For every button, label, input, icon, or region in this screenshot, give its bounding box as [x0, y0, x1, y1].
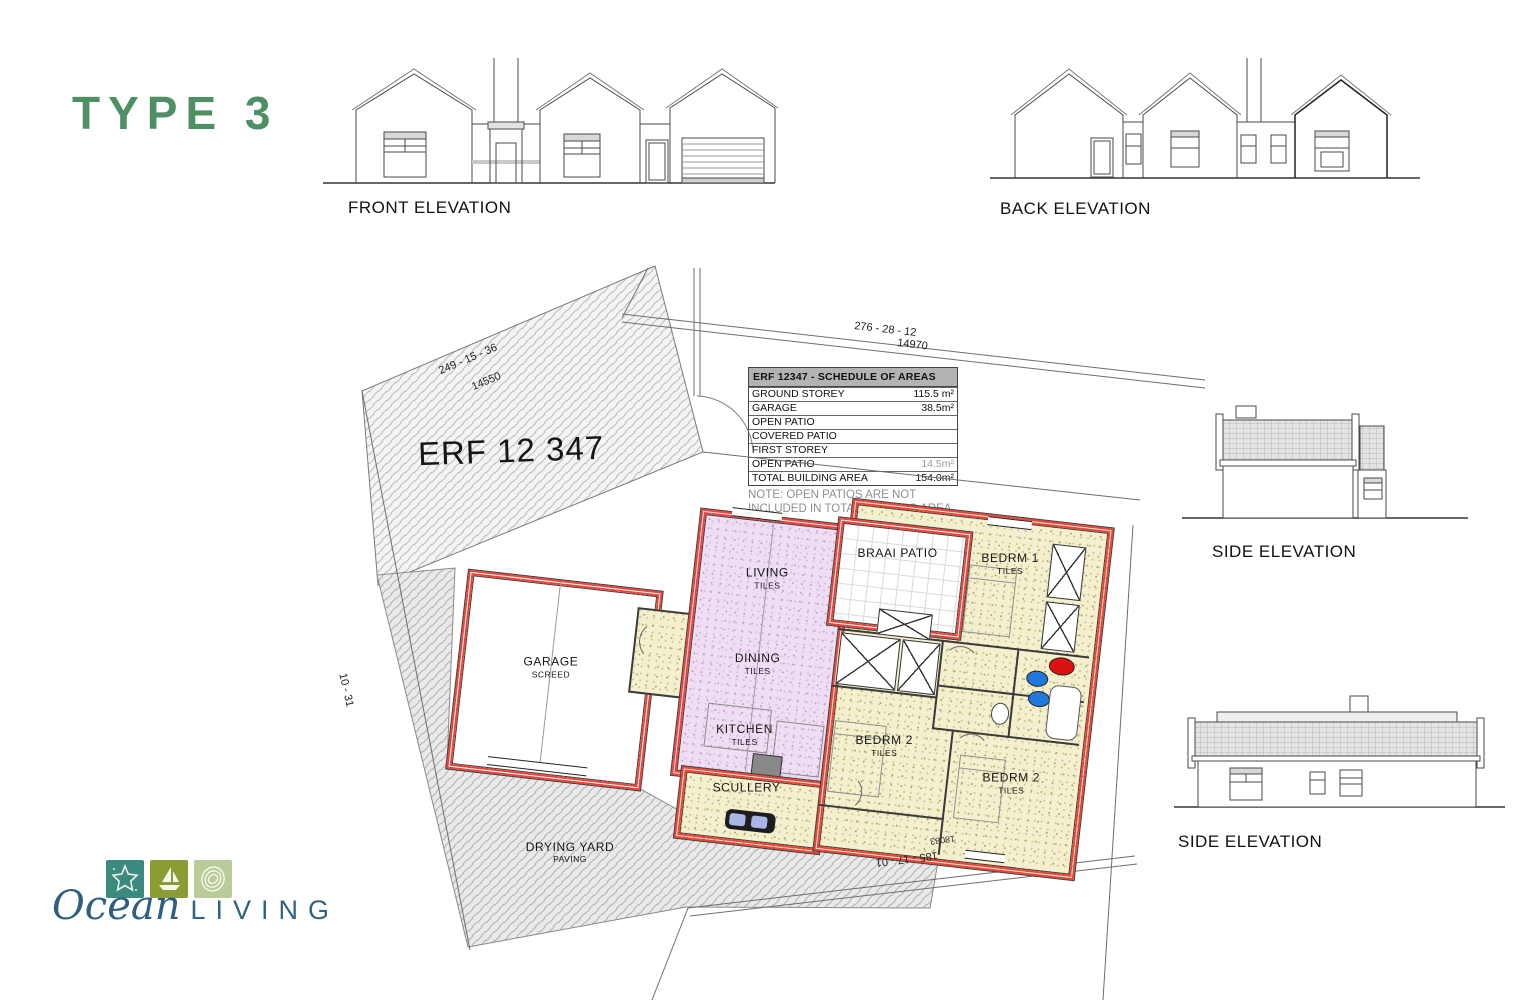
schedule-row: OPEN PATIO14.5m²	[749, 457, 957, 471]
back-elevation-label: BACK ELEVATION	[1000, 199, 1151, 219]
logo-caps-text: LIVING	[190, 897, 339, 924]
side-elevation-upper-drawing	[1180, 398, 1470, 538]
sink-bowl	[751, 815, 768, 829]
logo-wordmark: Ocean LIVING	[52, 886, 339, 926]
wardrobe	[835, 632, 901, 690]
sink-bowl	[729, 813, 746, 827]
wardrobe	[1041, 601, 1080, 653]
page-title: TYPE 3	[72, 86, 279, 140]
logo-script-text: Ocean	[52, 886, 180, 926]
schedule-row: TOTAL BUILDING AREA154.0m²	[749, 471, 957, 485]
schedule-title: ERF 12347 - SCHEDULE OF AREAS	[749, 368, 957, 387]
room-label-bedrm2-mid: BEDRM 2 TILES	[827, 733, 942, 758]
floor-plan: GARAGE SCREED LIVING TILES DINING TILES …	[348, 442, 1153, 1000]
room-label-scullery: SCULLERY	[679, 781, 814, 795]
room-label-drying-yard: DRYING YARD PAVING	[505, 840, 635, 864]
side-elevation-lower-label: SIDE ELEVATION	[1178, 832, 1322, 852]
bathtub	[1045, 684, 1083, 741]
front-elevation-label: FRONT ELEVATION	[348, 198, 511, 218]
room-label-garage: GARAGE SCREED	[483, 655, 618, 680]
room-label-bedrm2-end: BEDRM 2 TILES	[951, 770, 1071, 795]
plan-sheet: TYPE 3 FRONT ELEVATION	[0, 0, 1540, 1000]
room-scullery	[674, 766, 827, 854]
room-label-kitchen: KITCHEN TILES	[677, 722, 812, 747]
distance-top: 14970	[897, 337, 929, 352]
erf-number-label: ERF 12 347	[417, 429, 604, 473]
schedule-row: OPEN PATIO	[749, 415, 957, 429]
distance-left: 14550	[470, 370, 503, 393]
schedule-table: ERF 12347 - SCHEDULE OF AREAS GROUND STO…	[748, 367, 958, 486]
side-elevation-upper-lines	[1182, 406, 1468, 518]
room-label-dining: DINING TILES	[690, 651, 825, 676]
room-label-braai-patio: BRAAI PATIO	[834, 546, 962, 560]
back-elevation-lines	[990, 58, 1420, 178]
room-label-bedrm1: BEDRM 1 TILES	[950, 551, 1070, 576]
side-elevation-lower-lines	[1174, 696, 1505, 807]
schedule-row: GARAGE38.5m²	[749, 401, 957, 415]
back-elevation-drawing	[985, 58, 1425, 193]
schedule-row: GROUND STOREY115.5 m²	[749, 387, 957, 401]
front-elevation-drawing	[318, 58, 780, 198]
room-label-living: LIVING TILES	[700, 566, 835, 591]
schedule-row: FIRST STOREY	[749, 443, 957, 457]
linen-cupboard	[897, 639, 941, 695]
bearing-top: 276 - 28 - 12	[854, 320, 917, 339]
side-elevation-lower-drawing	[1172, 692, 1507, 827]
bearing-west: 10 - 31	[336, 672, 355, 708]
front-elevation-lines	[323, 58, 778, 183]
side-elevation-upper-label: SIDE ELEVATION	[1212, 542, 1356, 562]
schedule-row: COVERED PATIO	[749, 429, 957, 443]
bearing-left: 249 - 15 - 36	[437, 342, 499, 377]
